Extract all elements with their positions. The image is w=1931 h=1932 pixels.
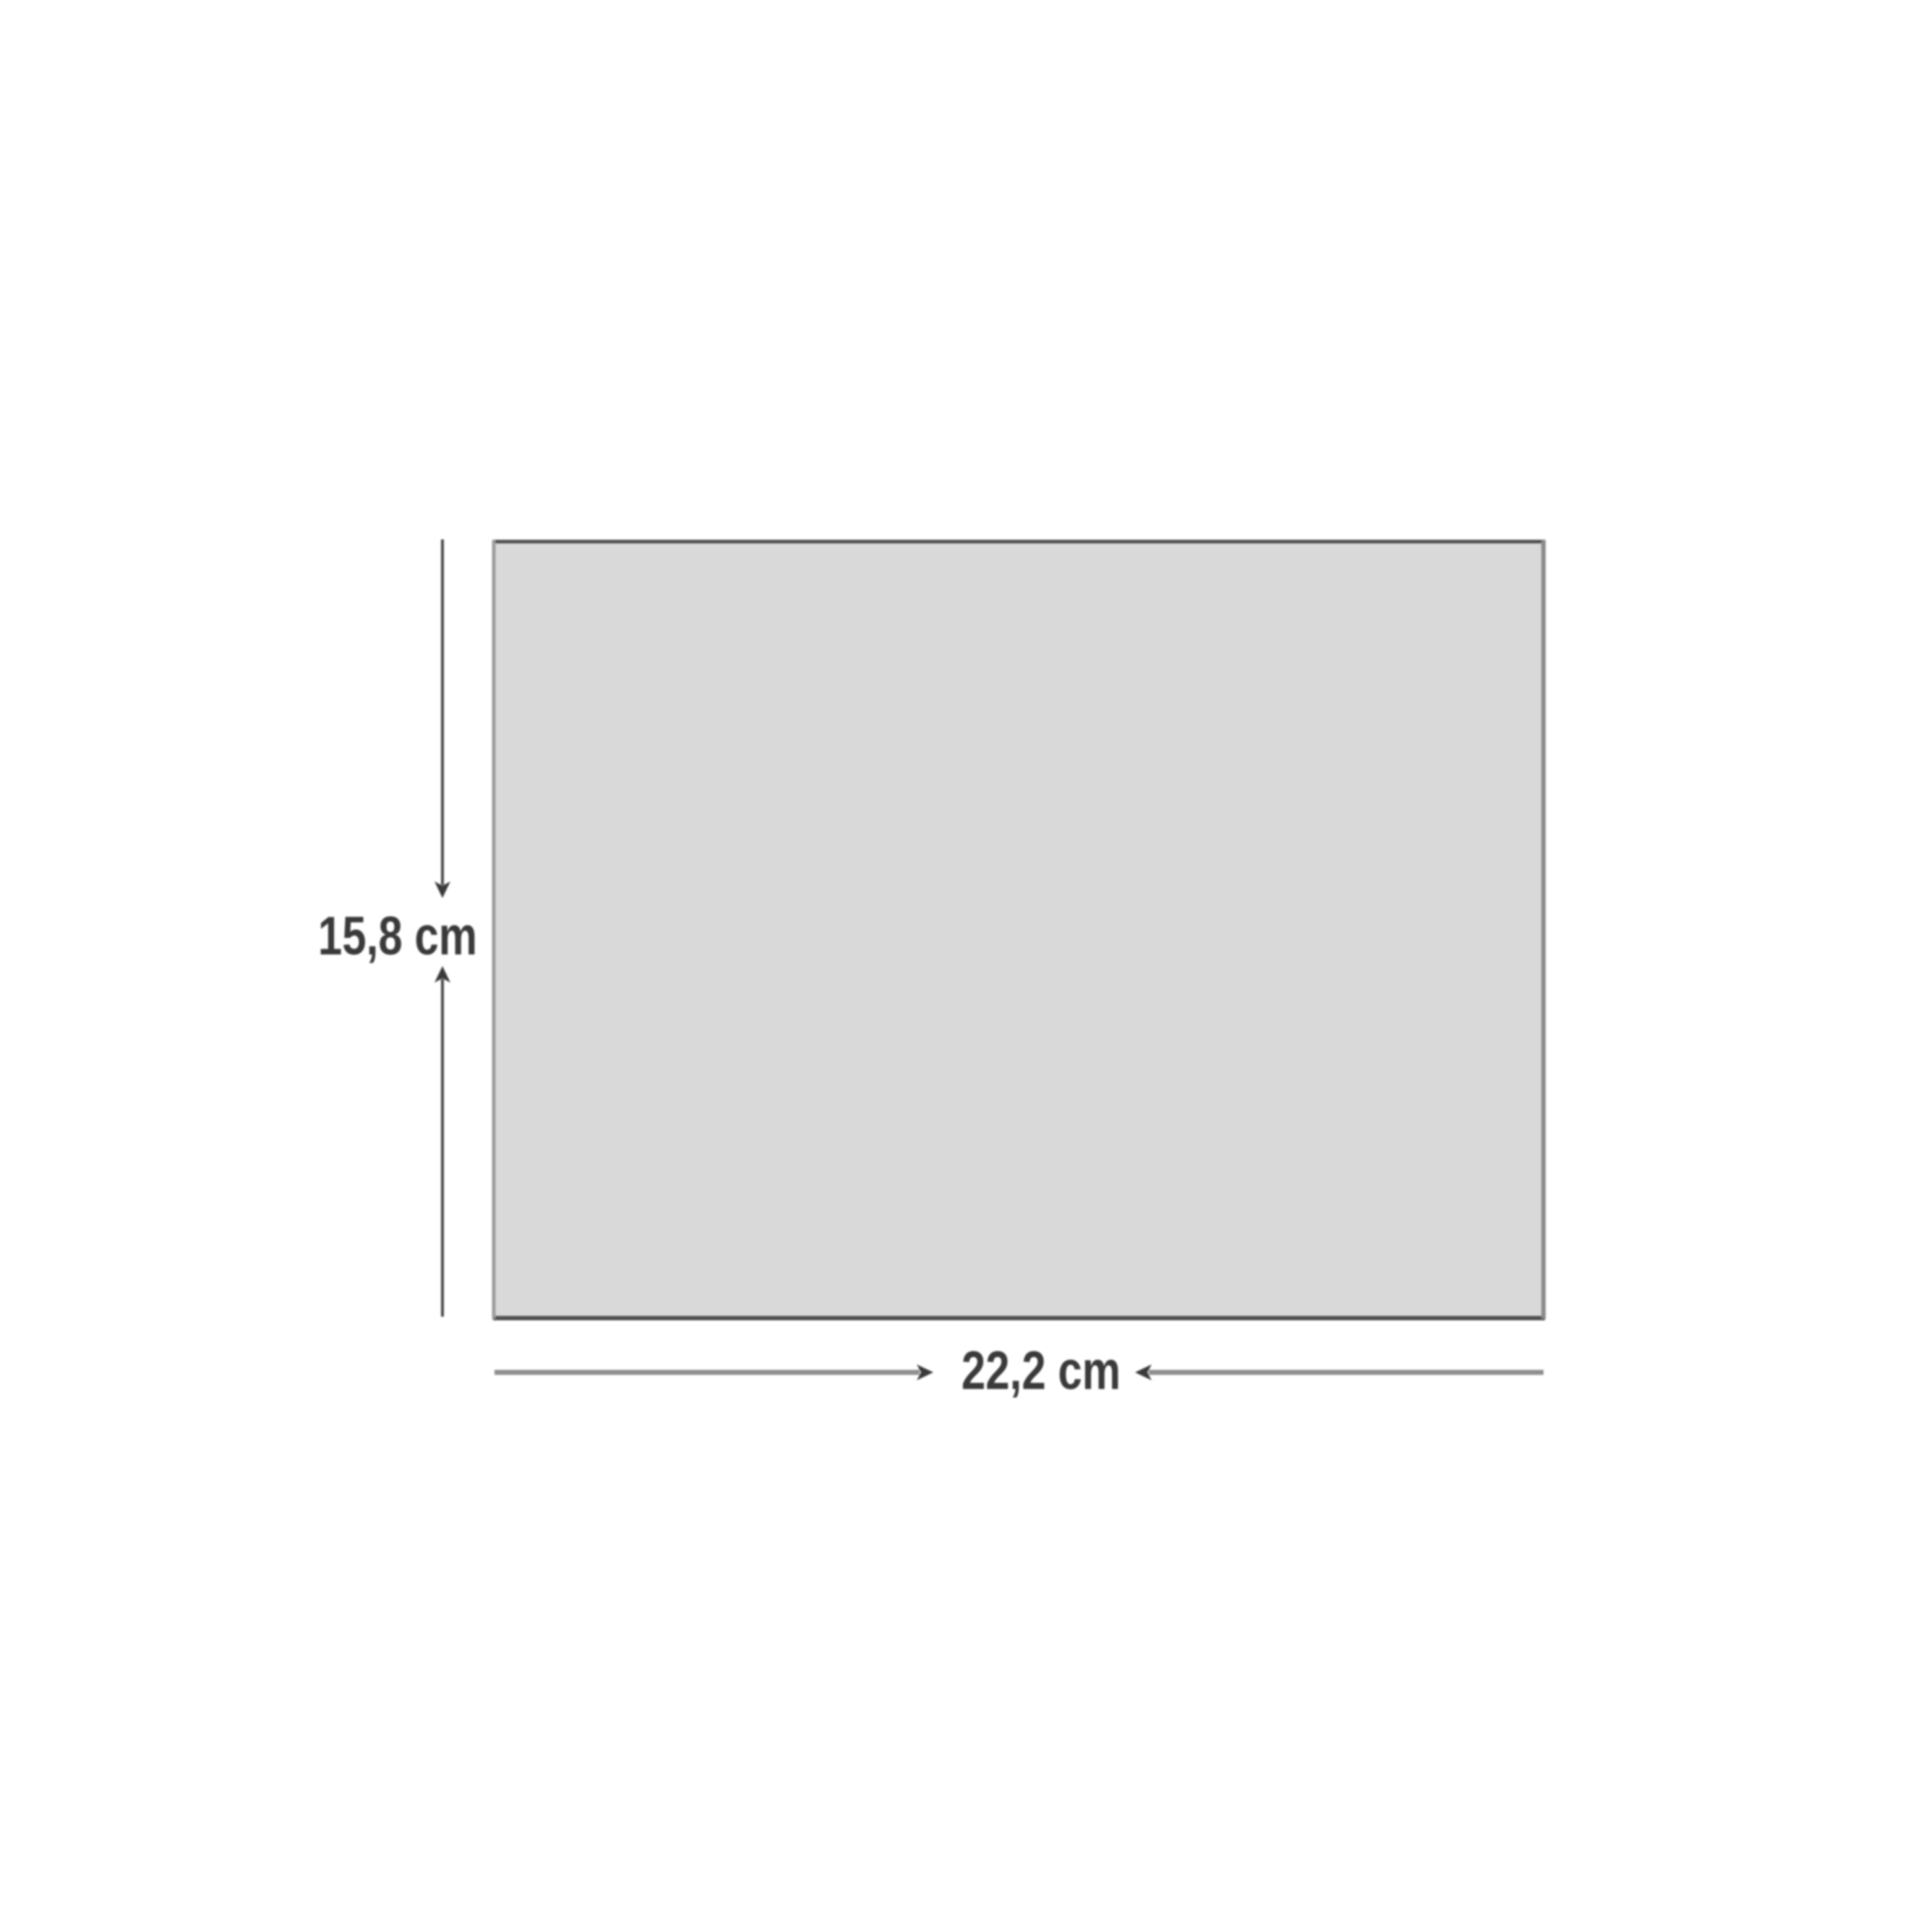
svg-text:15,8 cm: 15,8 cm <box>318 907 477 967</box>
svg-text:22,2 cm: 22,2 cm <box>962 1341 1121 1401</box>
